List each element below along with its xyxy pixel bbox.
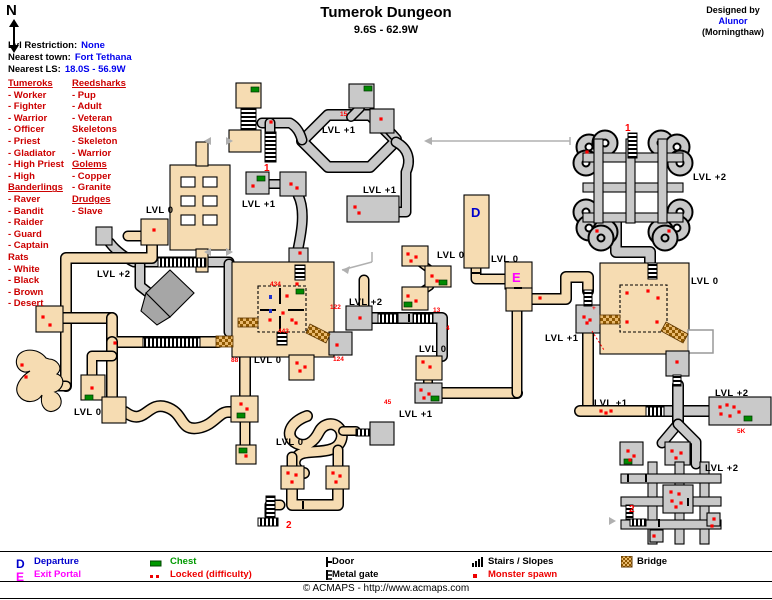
- chest-icon: [237, 413, 245, 418]
- stairs-icon: [584, 290, 592, 306]
- monster-spawn-dot: [626, 449, 629, 452]
- monster-spawn-dot: [48, 323, 51, 326]
- monster-list-item: - Granite: [72, 182, 111, 193]
- monster-spawn-dot: [667, 229, 670, 232]
- chest-icon: [404, 302, 412, 307]
- legend-label: Exit Portal: [34, 569, 81, 580]
- monster-spawn-dot: [251, 184, 254, 187]
- acmaps-dungeon-map-page: LVL 0LVL +1LVL +1LVL +1LVL +2LVL 0LVL 0L…: [0, 0, 772, 600]
- monster-spawn-dot: [646, 289, 649, 292]
- monster-spawn-dot: [268, 318, 271, 321]
- designer-line1: Designed by: [702, 5, 764, 16]
- room: [594, 139, 603, 223]
- room: [246, 172, 269, 194]
- info-lvl-restriction: Lvl Restriction:None: [8, 40, 105, 51]
- monster-spawn-dot: [652, 534, 655, 537]
- level-label: LVL +2: [693, 172, 727, 183]
- monster-spawn-dot: [674, 505, 677, 508]
- room: [658, 139, 667, 223]
- monster-spawn-dot: [353, 205, 356, 208]
- monster-list-item: - Priest: [8, 136, 40, 147]
- legend-label: Metal gate: [332, 569, 378, 580]
- teleport-arrowhead-icon: [609, 517, 616, 525]
- monster-list-item: - Captain: [8, 240, 49, 251]
- level-label: LVL +1: [399, 409, 433, 420]
- lock-difficulty-annotation: 4: [446, 325, 450, 332]
- monster-spawn-dot: [294, 473, 297, 476]
- monster-spawn-dot: [334, 480, 337, 483]
- monster-spawn-dot: [24, 375, 27, 378]
- lock-difficulty-annotation: 45: [384, 399, 392, 406]
- lock-difficulty-annotation: 434: [270, 281, 281, 288]
- stairs-icon: [646, 407, 664, 416]
- monster-list-item: - Black: [8, 275, 39, 286]
- monster-spawn-dot: [732, 405, 735, 408]
- monster-spawn-dot: [719, 412, 722, 415]
- chest-icon: [251, 87, 259, 92]
- info-value: 18.0S - 56.9W: [65, 64, 126, 75]
- stairs-icon: [265, 132, 276, 162]
- monster-list-item: - High Priest: [8, 159, 64, 170]
- monster-spawn-dot: [604, 411, 607, 414]
- room: [370, 422, 394, 445]
- monster-group-header: Drudges: [72, 194, 111, 205]
- legend-label: Chest: [170, 556, 196, 567]
- legend-label: Locked (difficulty): [170, 569, 252, 580]
- chest-icon: [85, 395, 93, 400]
- chest-icon: [239, 448, 247, 453]
- level-label: LVL +2: [97, 269, 131, 280]
- corridor: [292, 488, 338, 505]
- monster-list-item: - Raver: [8, 194, 40, 205]
- monster-list-item: - Desert: [8, 298, 43, 309]
- monster-group-header: Rats: [8, 252, 29, 263]
- monster-spawn-dot: [298, 251, 301, 254]
- lock-difficulty-annotation: 15: [340, 111, 348, 118]
- level-label: LVL 0: [254, 355, 282, 366]
- stairs-icon: [295, 265, 305, 280]
- monster-spawn-dot: [303, 365, 306, 368]
- monster-spawn-dot: [269, 120, 272, 123]
- monster-list-item: - High: [8, 171, 35, 182]
- stairs-icon: [630, 519, 646, 526]
- monster-list-item: - Fighter: [8, 101, 46, 112]
- lock-difficulty-annotation: 124: [333, 356, 344, 363]
- monster-group-header: Banderlings: [8, 182, 63, 193]
- monster-list-item: - Raider: [8, 217, 43, 228]
- legend-label: Stairs / Slopes: [488, 556, 553, 567]
- monster-spawn-dot: [295, 361, 298, 364]
- departure-marker: D: [471, 205, 480, 220]
- monster-list-item: - Worker: [8, 90, 46, 101]
- monster-spawn-dot: [435, 279, 438, 282]
- door-icon: [302, 501, 304, 509]
- monster-list-item: - Pup: [72, 90, 96, 101]
- legend-label: Monster spawn: [488, 569, 557, 580]
- monster-spawn-dot: [244, 454, 247, 457]
- monster-spawn-dot: [294, 321, 297, 324]
- info-label: Nearest town:: [8, 52, 71, 63]
- monster-spawn-dot: [290, 480, 293, 483]
- monster-spawn-dot: [379, 117, 382, 120]
- monster-spawn-dot: [414, 255, 417, 258]
- monster-spawn-dot: [585, 150, 588, 153]
- monster-list-item: - Gladiator: [8, 148, 56, 159]
- room: [289, 248, 308, 263]
- level-label: LVL 0: [276, 437, 304, 448]
- level-label: LVL 0: [491, 254, 519, 265]
- monster-list-item: - Warrior: [8, 113, 47, 124]
- monster-spawn-dot: [625, 291, 628, 294]
- room: [203, 196, 217, 206]
- chest-icon: [296, 289, 304, 294]
- designer-line3: (Morningthaw): [702, 27, 764, 38]
- legend-label: Door: [332, 556, 354, 567]
- monster-spawn-dot: [286, 471, 289, 474]
- bridge-icon: [621, 555, 633, 573]
- monster-spawn-dot: [113, 341, 116, 344]
- door-icon: [687, 498, 689, 506]
- stairs-number: 1: [625, 123, 631, 134]
- stairs-icon: [266, 496, 275, 518]
- room: [621, 474, 721, 483]
- monster-spawn-dot: [430, 274, 433, 277]
- door-icon: [472, 272, 480, 274]
- monster-spawn-dot: [737, 410, 740, 413]
- stairs-icon: [143, 338, 200, 347]
- monster-spawn-dot: [152, 228, 155, 231]
- blue-mark: [269, 295, 272, 299]
- stairs-icon: [378, 314, 398, 323]
- monster-list-item: - Adult: [72, 101, 102, 112]
- monster-spawn-dot: [409, 259, 412, 262]
- info-label: Lvl Restriction:: [8, 40, 77, 51]
- chest-icon: [744, 416, 752, 421]
- monster-spawn-dot: [298, 369, 301, 372]
- stairs-number: 1: [264, 163, 270, 174]
- room: [196, 142, 208, 166]
- monster-spawn-dot: [357, 211, 360, 214]
- bridge-icon: [600, 315, 620, 324]
- room: [281, 466, 304, 489]
- monster-spawn-dot: [679, 451, 682, 454]
- monster-spawn-dot: [427, 392, 430, 395]
- monster-list-item: - Guard: [8, 229, 42, 240]
- chest-icon: [439, 280, 447, 285]
- level-label: LVL +1: [322, 125, 356, 136]
- monster-spawn-dot: [295, 282, 298, 285]
- monster-list-item: - Brown: [8, 287, 43, 298]
- door-icon: [514, 287, 522, 289]
- room: [329, 332, 352, 355]
- room: [280, 172, 306, 196]
- monster-spawn-dot: [406, 252, 409, 255]
- level-label: LVL +2: [705, 463, 739, 474]
- monster-spawn-dot: [670, 499, 673, 502]
- monster-spawn-dot: [245, 407, 248, 410]
- room: [36, 306, 63, 332]
- map-coordinates: 9.6S - 62.9W: [0, 24, 772, 36]
- designer-name: Alunor: [702, 16, 764, 27]
- monster-spawn-dot: [718, 405, 721, 408]
- level-label: LVL 0: [419, 344, 447, 355]
- stairs-icon: [356, 429, 370, 436]
- level-label: LVL 0: [74, 407, 102, 418]
- stairs-number: 2: [629, 504, 635, 515]
- stairs-icon: [158, 258, 206, 267]
- page-title: Tumerok Dungeon: [0, 4, 772, 21]
- lock-difficulty-annotation: +: [592, 305, 596, 312]
- monster-spawn-dot: [90, 386, 93, 389]
- monster-spawn-dot: [677, 492, 680, 495]
- stairs-icon: [413, 314, 433, 323]
- monster-spawn-dot: [669, 490, 672, 493]
- teleport-arrowhead-icon: [342, 266, 350, 274]
- designer-credit: Designed by Alunor (Morningthaw): [702, 5, 764, 38]
- room: [289, 355, 314, 380]
- monster-spawn-dot: [406, 294, 409, 297]
- monster-spawn-dot: [588, 318, 591, 321]
- stairs-icon: [241, 109, 256, 129]
- monster-spawn-dot: [609, 409, 612, 412]
- exit-portal-marker: E: [512, 270, 521, 285]
- level-label: LVL 0: [691, 276, 719, 287]
- monster-spawn-dot: [538, 296, 541, 299]
- monster-spawn-dot: [295, 186, 298, 189]
- monster-spawn-dot: [41, 315, 44, 318]
- room: [141, 219, 168, 245]
- monster-spawn-dot: [710, 524, 713, 527]
- monster-spawn-dot: [358, 316, 361, 319]
- stairs-icon: [628, 133, 637, 158]
- monster-list-item: - Veteran: [72, 113, 112, 124]
- door-icon: [627, 474, 629, 482]
- level-label: LVL 0: [437, 250, 465, 261]
- door-icon: [658, 519, 660, 527]
- monster-spawn-dot: [670, 449, 673, 452]
- stairs-icon: [258, 518, 278, 526]
- monster-spawn-dot: [625, 320, 628, 323]
- room: [506, 288, 532, 311]
- room: [181, 177, 195, 187]
- bridge-icon: [216, 336, 233, 347]
- room: [370, 109, 394, 133]
- room: [229, 130, 261, 152]
- monster-spawn-dot: [285, 294, 288, 297]
- lock-difficulty-annotation: 443: [278, 328, 289, 335]
- lock-difficulty-annotation: 88: [231, 357, 239, 364]
- monster-spawn-dot: [290, 318, 293, 321]
- monster-spawn-dot: [20, 363, 23, 366]
- monster-spawn-dot: [675, 360, 678, 363]
- bridge-icon: [238, 318, 258, 327]
- monster-group-header: Tumeroks: [8, 78, 53, 89]
- monster-spawn-dot: [599, 409, 602, 412]
- monster-list-item: - Bandit: [8, 206, 43, 217]
- corridor: [298, 195, 302, 249]
- info-label: Nearest LS:: [8, 64, 61, 75]
- monster-spawn-dot: [582, 315, 585, 318]
- corridor: [531, 277, 588, 299]
- legend-label: Bridge: [637, 556, 667, 567]
- door-icon: [408, 314, 410, 322]
- monster-spawn-dot: [628, 458, 631, 461]
- monster-spawn-dot: [728, 414, 731, 417]
- monster-spawn-dot: [725, 403, 728, 406]
- monster-list-item: - Skeleton: [72, 136, 117, 147]
- monster-spawn-dot: [335, 343, 338, 346]
- monster-spawn-dot: [655, 320, 658, 323]
- room: [688, 330, 713, 353]
- lock-difficulty-annotation: 5K: [737, 428, 746, 435]
- level-label: LVL +2: [349, 297, 383, 308]
- info-nearest-ls: Nearest LS:18.0S - 56.9W: [8, 64, 126, 75]
- chest-icon: [364, 86, 372, 91]
- footer-copyright: © ACMAPS - http://www.acmaps.com: [0, 583, 772, 594]
- chest-icon: [257, 176, 265, 181]
- legend-bar: DDepartureEExit PortalChestLocked (diffi…: [0, 551, 772, 582]
- room: [347, 196, 399, 222]
- level-label: LVL +2: [715, 388, 749, 399]
- monster-spawn-dot: [414, 299, 417, 302]
- room: [16, 350, 62, 411]
- monster-list-item: - Slave: [72, 206, 103, 217]
- level-label: LVL 0: [146, 205, 174, 216]
- monster-spawn-dot: [656, 296, 659, 299]
- monster-list-item: - Officer: [8, 124, 44, 135]
- monster-group-header: Golems: [72, 159, 107, 170]
- level-label: LVL +1: [242, 199, 276, 210]
- monster-spawn-dot: [585, 321, 588, 324]
- dungeon-map-canvas: LVL 0LVL +1LVL +1LVL +1LVL +2LVL 0LVL 0L…: [0, 0, 772, 600]
- room: [102, 397, 126, 423]
- stairs-icon: [648, 263, 657, 279]
- door-icon: [645, 474, 647, 482]
- room: [181, 196, 195, 206]
- monster-spawn-dot: [674, 456, 677, 459]
- monster-spawn-dot: [419, 388, 422, 391]
- level-label: LVL +1: [594, 398, 628, 409]
- monster-spawn-dot: [331, 471, 334, 474]
- room: [170, 165, 230, 250]
- monster-spawn-dot: [421, 360, 424, 363]
- level-label: LVL +1: [363, 185, 397, 196]
- room: [203, 177, 217, 187]
- monster-list-item: - Copper: [72, 171, 111, 182]
- monster-spawn-dot: [338, 474, 341, 477]
- info-value: None: [81, 40, 105, 51]
- monster-spawn-dot: [422, 396, 425, 399]
- stairs-number: 2: [286, 520, 292, 531]
- room: [326, 466, 349, 489]
- room: [96, 227, 112, 245]
- room: [181, 215, 195, 225]
- monster-list-item: - Warrior: [72, 148, 111, 159]
- monster-spawn-dot: [595, 229, 598, 232]
- legend-label: Departure: [34, 556, 79, 567]
- monster-spawn-dot: [679, 501, 682, 504]
- monster-spawn-dot: [281, 311, 284, 314]
- lock-difficulty-annotation: 13: [433, 307, 441, 314]
- stairs-icon: [673, 375, 681, 386]
- info-nearest-town: Nearest town:Fort Tethana: [8, 52, 132, 63]
- monster-group-header: Reedsharks: [72, 78, 126, 89]
- level-label: LVL +1: [545, 333, 579, 344]
- blue-mark: [269, 309, 272, 313]
- room: [650, 530, 663, 542]
- footer-rule: [0, 598, 772, 599]
- teleport-arrowhead-icon: [424, 137, 432, 145]
- monster-spawn-dot: [712, 517, 715, 520]
- monster-group-header: Skeletons: [72, 124, 117, 135]
- lock-difficulty-annotation: 122: [330, 304, 341, 311]
- monster-list-item: - White: [8, 264, 40, 275]
- monster-spawn-dot: [428, 365, 431, 368]
- chest-icon: [431, 396, 439, 401]
- info-value: Fort Tethana: [75, 52, 132, 63]
- monster-spawn-dot: [239, 402, 242, 405]
- monster-spawn-dot: [289, 182, 292, 185]
- room: [203, 215, 217, 225]
- monster-spawn-dot: [632, 454, 635, 457]
